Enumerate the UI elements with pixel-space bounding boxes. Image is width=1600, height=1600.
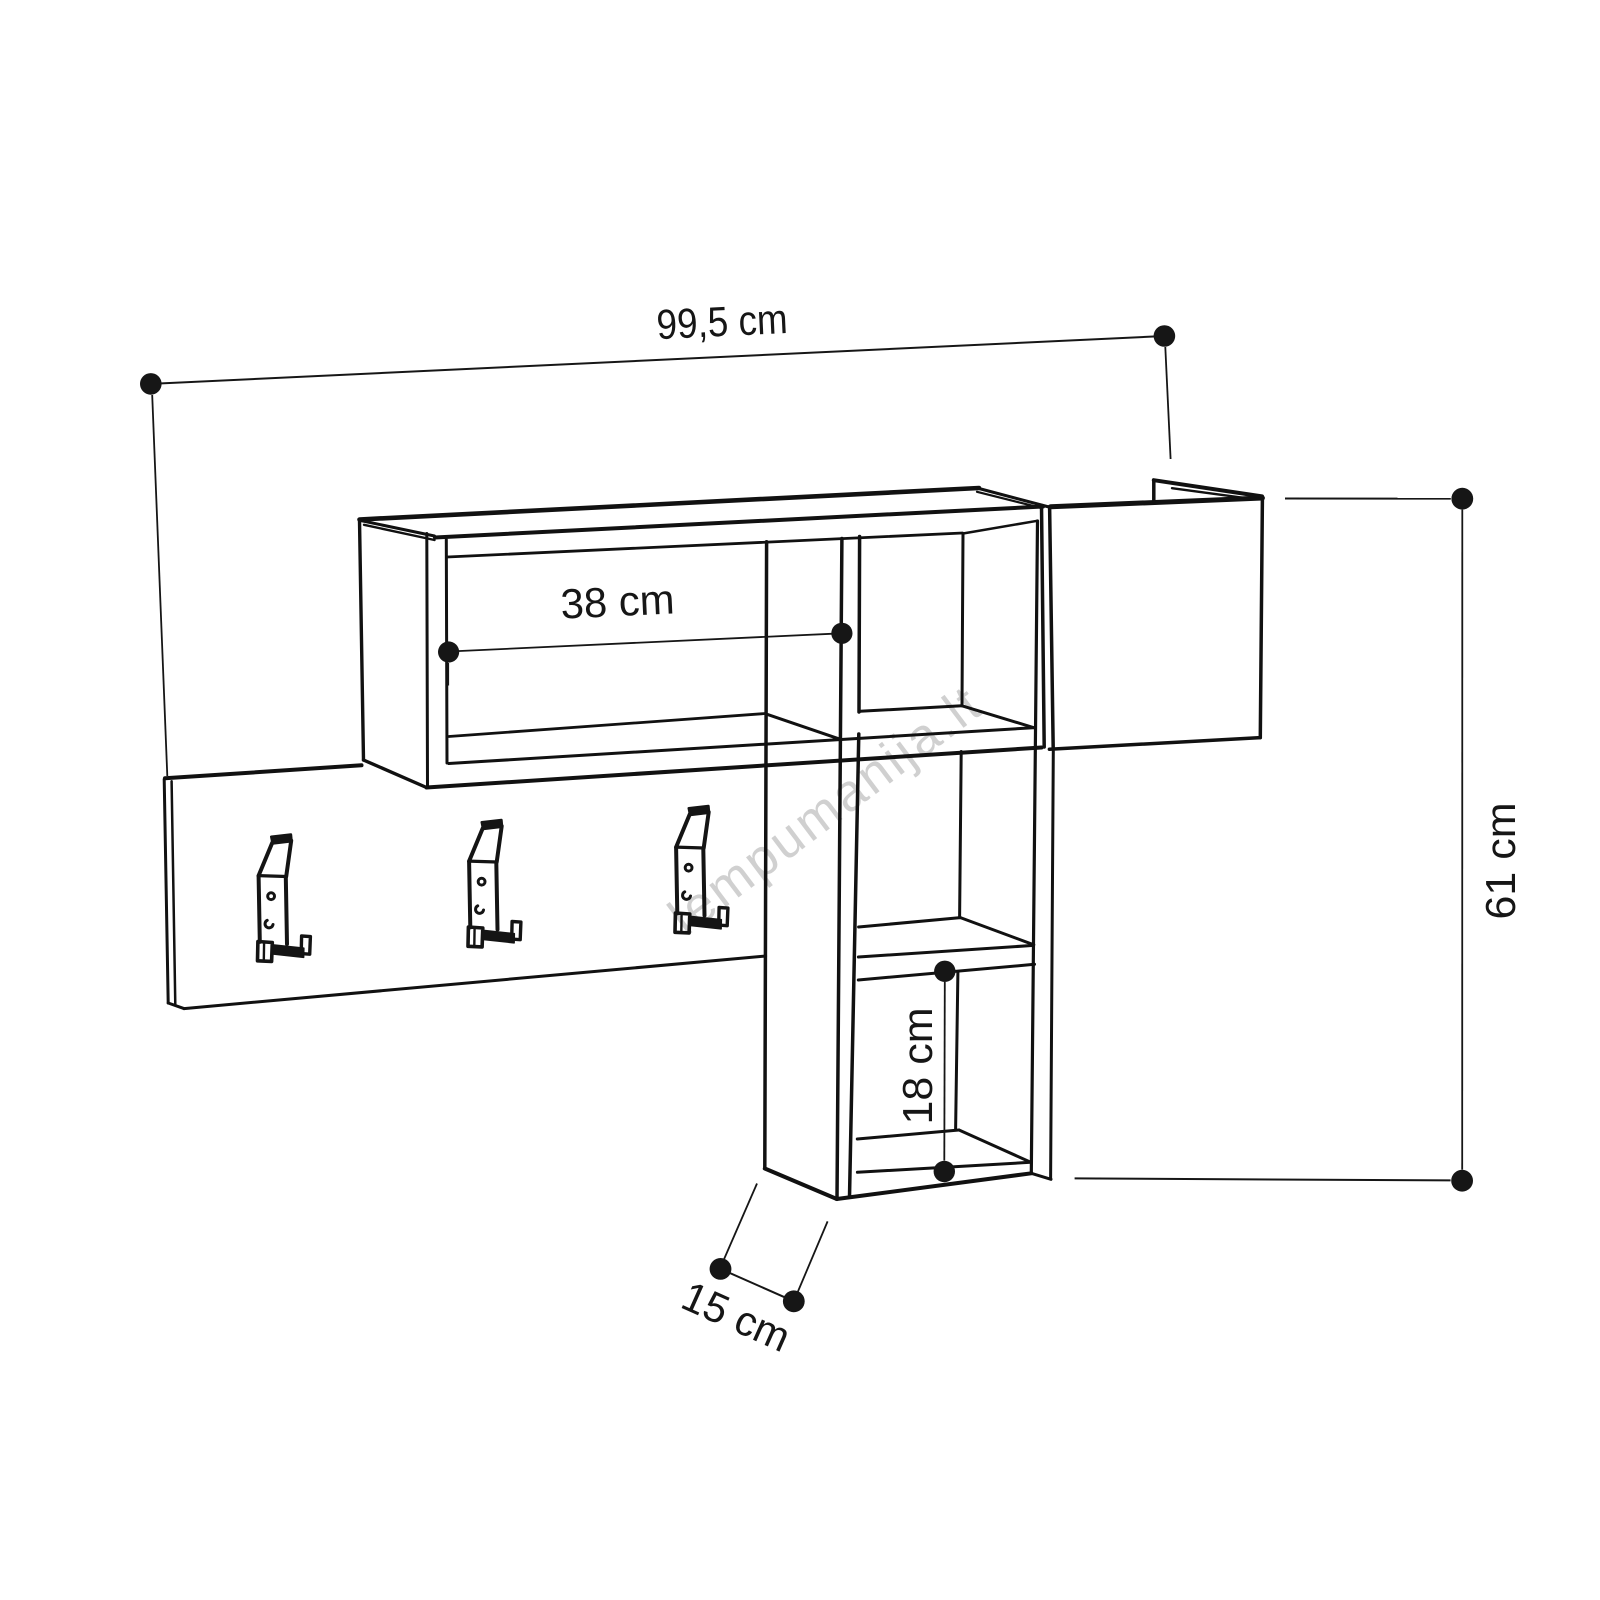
svg-text:38 cm: 38 cm — [559, 575, 675, 627]
svg-text:61 cm: 61 cm — [1477, 803, 1524, 920]
svg-text:18 cm: 18 cm — [894, 1008, 941, 1125]
svg-text:99,5 cm: 99,5 cm — [655, 295, 788, 348]
